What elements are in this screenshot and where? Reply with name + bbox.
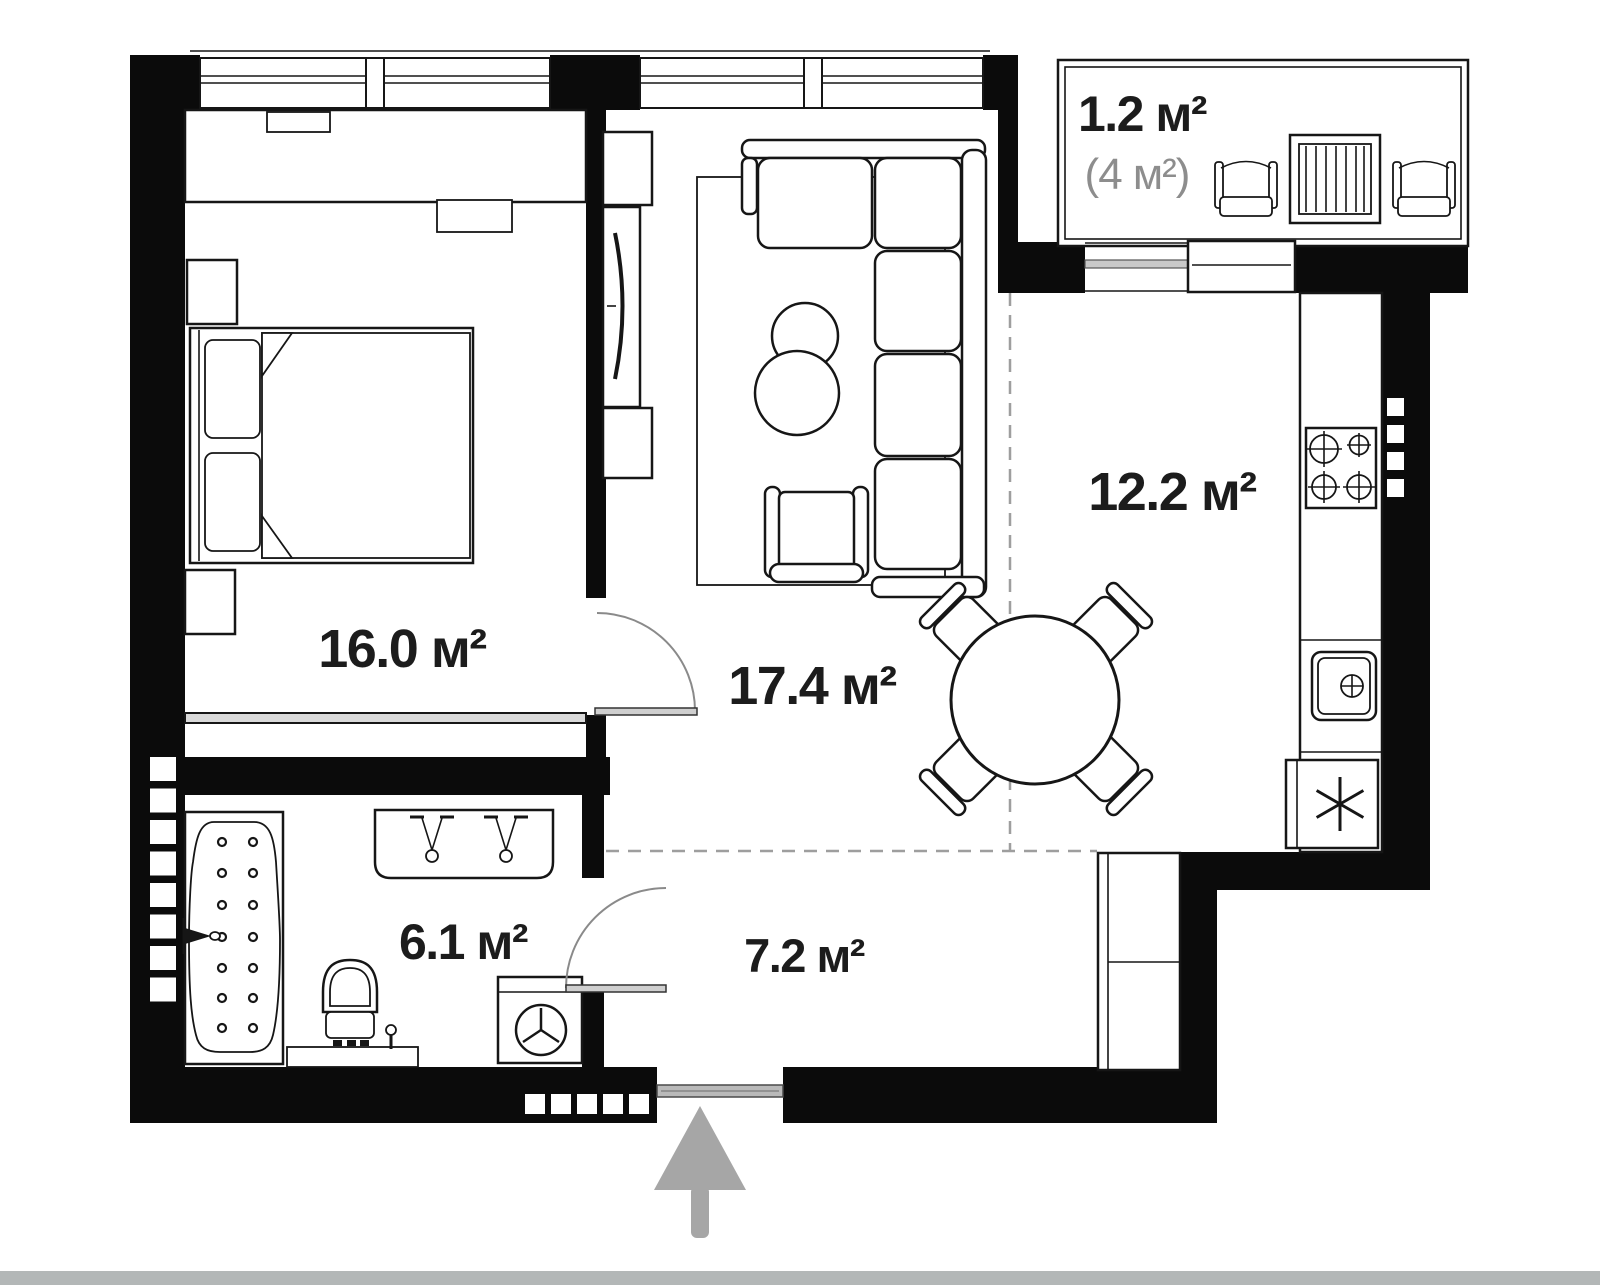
wall-divider-stub <box>586 715 606 763</box>
wall-bathroom-right-upper <box>582 795 604 878</box>
bedroom-window <box>200 58 550 108</box>
door-leaf <box>595 708 697 715</box>
living-area-label: 17.4 м² <box>728 656 896 716</box>
hallway-area-label: 7.2 м² <box>744 929 865 982</box>
sofa-backrest <box>742 140 985 158</box>
balcony-total-area-label: (4 м²) <box>1085 150 1190 199</box>
hallway-wardrobe <box>1098 853 1180 1070</box>
wall-balcony-bottom <box>1293 242 1468 293</box>
armchair-seat <box>779 492 854 572</box>
toilet-brush-icon <box>386 1025 396 1049</box>
sink-icon <box>1312 652 1376 720</box>
living-window <box>640 58 983 108</box>
footer-bar <box>0 1271 1600 1285</box>
sofa-cushion <box>875 459 961 569</box>
stove-4-burner-icon <box>1306 428 1376 508</box>
pillow <box>205 453 260 551</box>
sofa-cushion <box>875 158 961 248</box>
mattress <box>262 333 470 558</box>
wall-balcony-junction <box>998 55 1018 270</box>
pillow <box>205 340 260 438</box>
window-mullion <box>366 58 384 108</box>
fridge-icon <box>1286 760 1378 848</box>
armchair <box>765 487 868 582</box>
wardrobe-handle <box>267 112 330 132</box>
wall-top-left-corner <box>130 55 200 110</box>
double-bed <box>190 328 473 563</box>
wall-balcony-left-block <box>998 242 1085 293</box>
window-sill <box>1085 260 1190 268</box>
bedroom-furniture <box>185 110 586 634</box>
bedroom-area-label: 16.0 м² <box>318 619 486 679</box>
wall-bottom-right <box>783 1067 1217 1123</box>
balcony-table <box>1290 135 1380 223</box>
wardrobe-drawer <box>437 200 512 232</box>
balcony-area-label: 1.2 м² <box>1078 86 1207 142</box>
sofa-armrest-bottom <box>872 577 984 597</box>
floor-plan-svg: 16.0 м² 17.4 м² 12.2 м² 6.1 м² 7.2 м² 1.… <box>0 0 1600 1285</box>
bathroom-area-label: 6.1 м² <box>399 914 528 970</box>
wall-top-pillar <box>550 55 640 110</box>
dining-set <box>918 581 1155 818</box>
sofa-cushion <box>758 158 872 248</box>
balcony-door-panel <box>1188 241 1295 292</box>
armchair-back <box>770 564 863 582</box>
nightstand <box>187 260 237 324</box>
kitchen-fixtures <box>1286 293 1382 852</box>
wall-bathroom-top <box>130 757 610 795</box>
balcony-door-and-sill <box>1085 241 1295 292</box>
entrance-door <box>657 1085 783 1097</box>
wall-kitchen-bottom <box>1180 852 1430 890</box>
door-leaf <box>566 985 666 992</box>
wardrobe <box>185 110 586 202</box>
tv-cabinet-top <box>603 132 652 205</box>
sofa-backrest-right <box>962 150 986 597</box>
wall-bedroom-partition <box>185 713 586 723</box>
dining-table <box>951 616 1119 784</box>
tv-cabinet-bottom <box>603 408 652 478</box>
toilet-tank <box>326 1012 374 1038</box>
kitchen-area-label: 12.2 м² <box>1088 462 1256 522</box>
entrance-arrow-icon <box>654 1106 746 1238</box>
window-mullion <box>804 58 822 108</box>
vanity-double-sink <box>375 810 553 878</box>
living-furniture <box>603 132 986 597</box>
sofa-cushion <box>875 251 961 351</box>
toilet-icon <box>323 960 377 1046</box>
nightstand <box>185 570 235 634</box>
sofa-armrest-left <box>742 158 757 214</box>
wall-right <box>1380 293 1430 852</box>
coffee-table-large <box>755 351 839 435</box>
toilet-plinth <box>287 1047 418 1067</box>
floor-plan-page: 16.0 м² 17.4 м² 12.2 м² 6.1 м² 7.2 м² 1.… <box>0 0 1600 1285</box>
sofa-cushion <box>875 354 961 456</box>
wall-bathroom-right-lower <box>582 991 604 1067</box>
bedroom-door <box>595 613 697 715</box>
